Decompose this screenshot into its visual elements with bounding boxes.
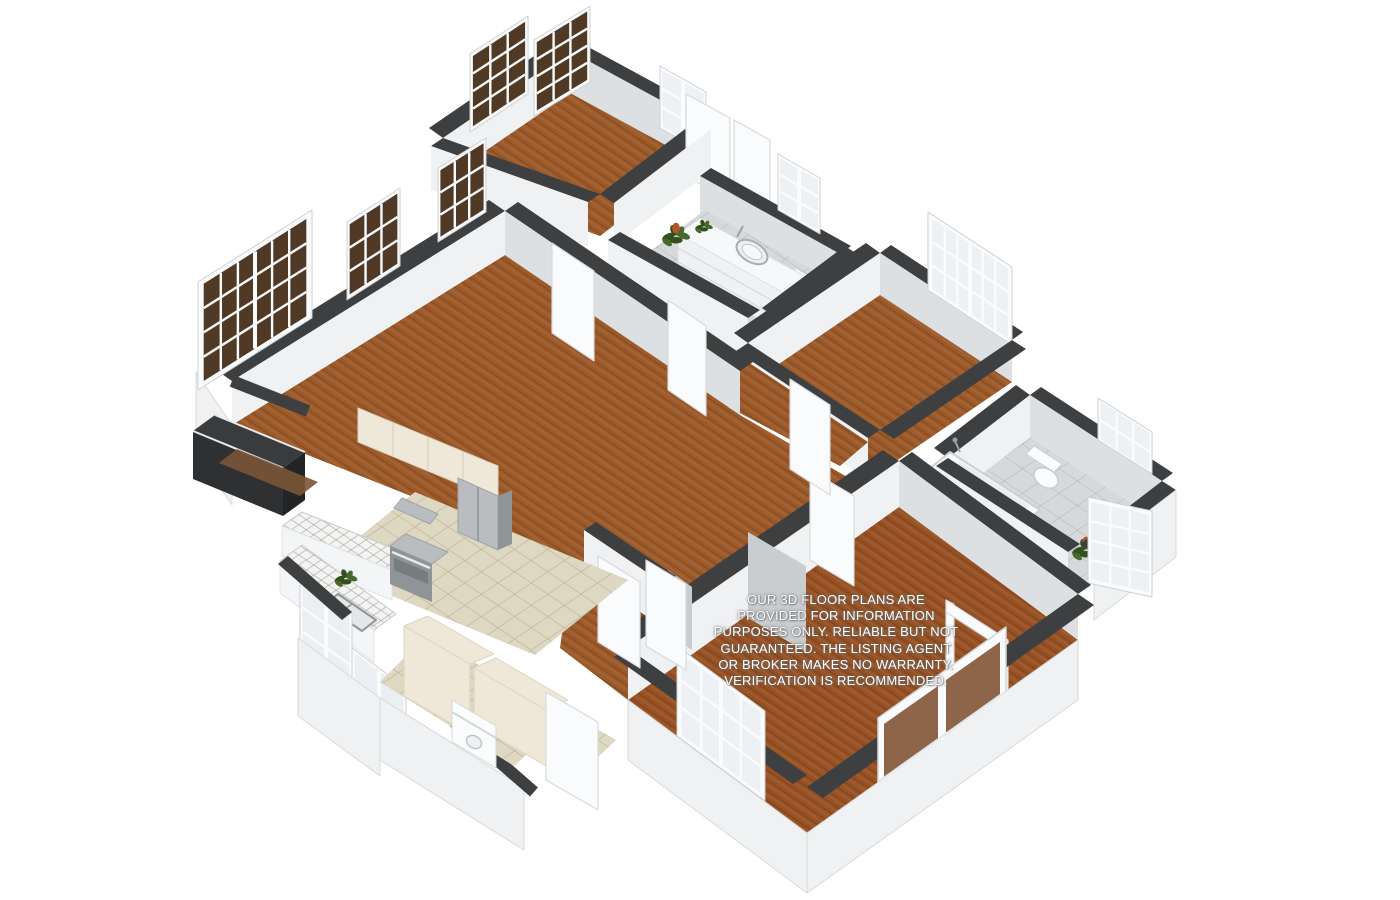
floor-plan-render (0, 0, 1400, 900)
window-icon (1088, 497, 1152, 597)
floor-plan-canvas: OUR 3D FLOOR PLANS ARE PROVIDED FOR INFO… (0, 0, 1400, 900)
